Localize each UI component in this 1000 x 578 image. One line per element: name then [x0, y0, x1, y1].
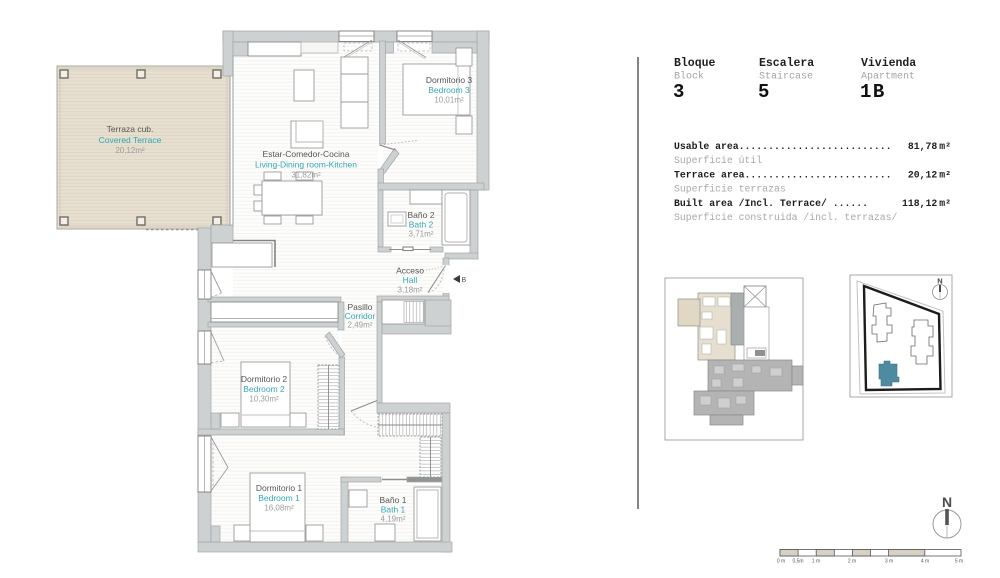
svg-text:1B: 1B — [860, 81, 886, 103]
svg-text:31,82m²: 31,82m² — [291, 171, 321, 180]
svg-text:2 m: 2 m — [848, 559, 856, 565]
svg-text:5 m: 5 m — [955, 559, 963, 565]
svg-text:10,01m²: 10,01m² — [434, 96, 464, 105]
svg-text:Bedroom 3: Bedroom 3 — [428, 85, 470, 95]
svg-text:4,19m²: 4,19m² — [381, 515, 406, 524]
svg-text:Terraza cub.: Terraza cub. — [107, 124, 154, 134]
svg-text:N: N — [937, 277, 942, 286]
svg-text:Acceso: Acceso — [396, 266, 424, 276]
svg-text:81,78 m²: 81,78 m² — [908, 141, 951, 152]
svg-text:3: 3 — [673, 81, 684, 103]
svg-text:1 m: 1 m — [812, 559, 820, 565]
svg-text:Living-Dining room-Kitchen: Living-Dining room-Kitchen — [255, 160, 357, 170]
svg-text:20,12m²: 20,12m² — [115, 146, 145, 155]
svg-text:N: N — [942, 494, 952, 510]
svg-text:Dormitorio 3: Dormitorio 3 — [426, 75, 473, 85]
svg-text:118,12 m²: 118,12 m² — [902, 198, 951, 209]
svg-text:Corridor: Corridor — [345, 311, 376, 321]
svg-text:Built area /Incl. Terrace/ ...: Built area /Incl. Terrace/ ...... — [674, 198, 868, 209]
svg-text:Estar-Comedor-Cocina: Estar-Comedor-Cocina — [263, 149, 350, 159]
svg-text:Usable area...................: Usable area.......................... — [674, 141, 892, 152]
svg-text:Bedroom 2: Bedroom 2 — [243, 384, 285, 394]
svg-text:Bloque: Bloque — [674, 57, 716, 70]
svg-text:B: B — [462, 277, 467, 284]
svg-text:16,08m²: 16,08m² — [264, 504, 294, 513]
svg-text:20,12 m²: 20,12 m² — [908, 170, 951, 181]
svg-text:3,71m²: 3,71m² — [409, 230, 434, 239]
svg-text:Vivienda: Vivienda — [861, 57, 916, 70]
svg-text:Bath 1: Bath 1 — [381, 505, 406, 515]
svg-text:5: 5 — [758, 81, 769, 103]
svg-text:Bedroom 1: Bedroom 1 — [258, 493, 300, 503]
svg-text:Superficie útil: Superficie útil — [674, 155, 762, 166]
svg-text:Bath 2: Bath 2 — [409, 220, 434, 230]
svg-text:2,49m²: 2,49m² — [348, 321, 373, 330]
svg-text:Dormitorio 2: Dormitorio 2 — [241, 374, 288, 384]
svg-text:Covered Terrace: Covered Terrace — [99, 135, 162, 145]
svg-text:Superficie terrazas: Superficie terrazas — [674, 184, 786, 195]
svg-text:Escalera: Escalera — [759, 57, 814, 70]
svg-text:Baño 2: Baño 2 — [408, 210, 435, 220]
svg-text:3,18m²: 3,18m² — [398, 286, 423, 295]
svg-text:0,5m: 0,5m — [792, 559, 803, 565]
svg-text:Dormitorio 1: Dormitorio 1 — [256, 483, 303, 493]
svg-text:Superficie construida /incl. t: Superficie construida /incl. terrazas/ — [674, 212, 898, 223]
svg-text:Terrace area..................: Terrace area......................... — [674, 170, 892, 181]
svg-text:Hall: Hall — [403, 275, 418, 285]
svg-text:0 m: 0 m — [777, 559, 785, 565]
svg-text:4 m: 4 m — [921, 559, 929, 565]
svg-text:Baño 1: Baño 1 — [380, 495, 407, 505]
svg-text:3 m: 3 m — [885, 559, 893, 565]
svg-text:10,30m²: 10,30m² — [249, 395, 279, 404]
